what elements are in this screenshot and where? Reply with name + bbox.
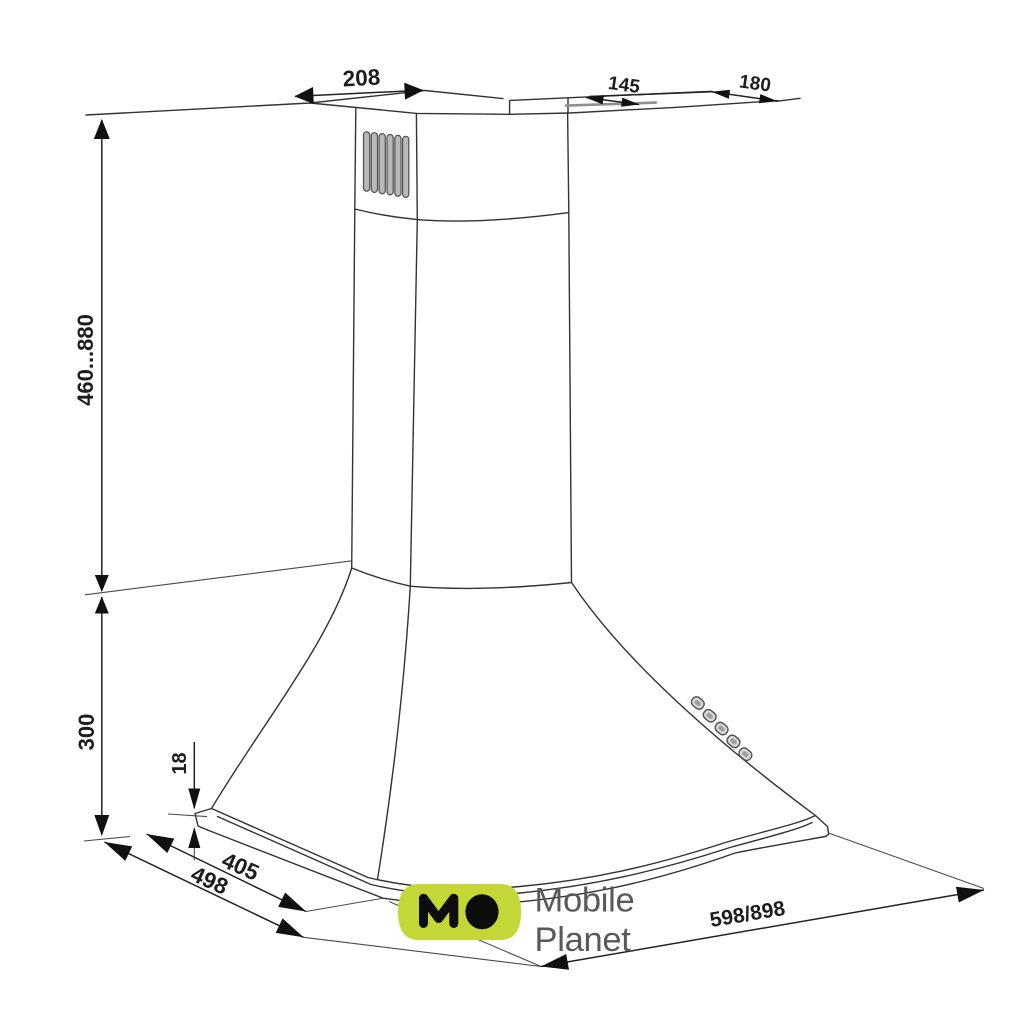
svg-text:598/898: 598/898 [708,897,787,932]
svg-text:Planet: Planet [535,921,632,959]
svg-text:180: 180 [738,71,772,96]
svg-text:Mobile: Mobile [535,881,635,919]
svg-text:300: 300 [74,714,99,751]
svg-text:460...880: 460...880 [73,314,98,406]
svg-text:18: 18 [169,752,191,774]
svg-text:208: 208 [342,65,381,92]
svg-text:145: 145 [607,73,642,98]
